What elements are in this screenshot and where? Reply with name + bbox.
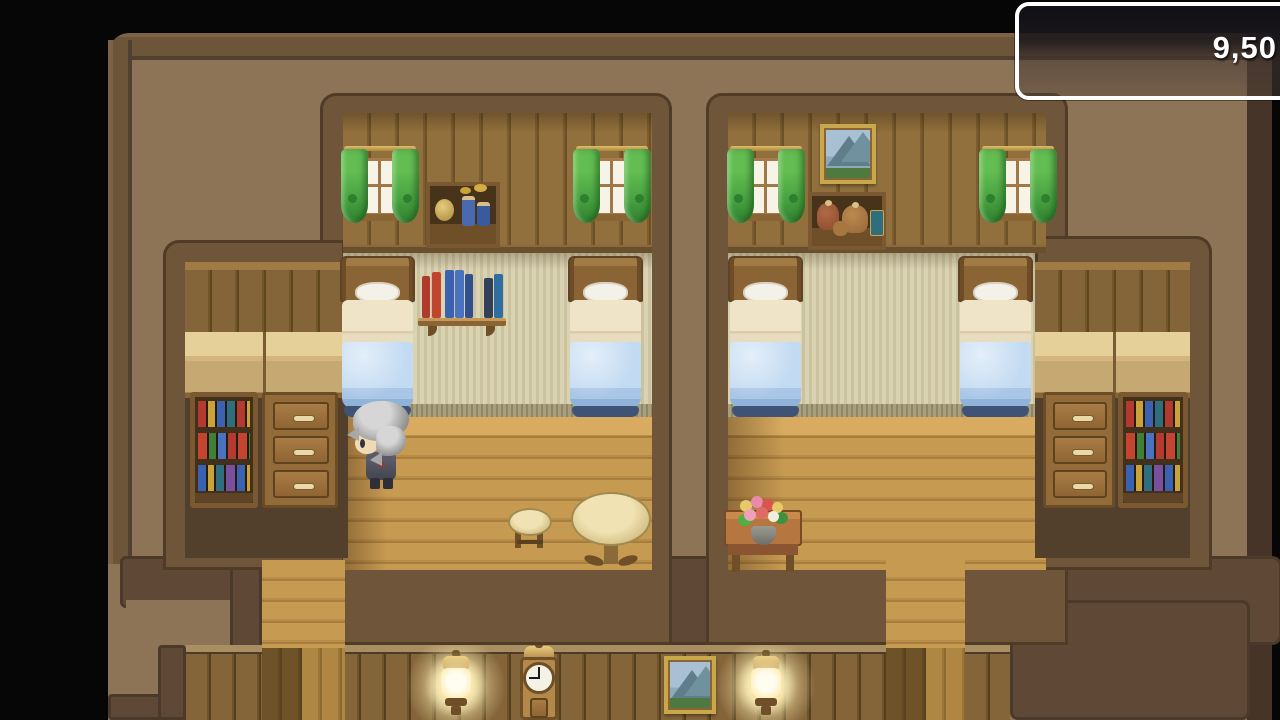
mountain-shape2 [841, 132, 870, 162]
book [445, 270, 454, 318]
shelf-plank [418, 318, 506, 326]
wall-lamp [742, 650, 790, 720]
corridor-shadow [262, 648, 302, 720]
book-row [198, 465, 250, 491]
curtain-tieback [734, 194, 743, 203]
curtain-tieback [1041, 194, 1050, 203]
book [455, 270, 464, 318]
character-leg [370, 478, 380, 489]
wall-lamp [432, 650, 480, 720]
shelf-front [430, 224, 496, 244]
grandfather-clock [514, 646, 564, 720]
jar-shelf [426, 182, 500, 248]
gold-lid [460, 187, 471, 194]
drawer [273, 402, 329, 430]
curtain-right [392, 149, 419, 223]
bookshelf [1118, 392, 1188, 508]
book-row [198, 401, 250, 427]
bed-sheet [570, 300, 641, 344]
character-hair-back [376, 426, 406, 456]
flower-white [768, 511, 779, 522]
book-row [1126, 401, 1180, 427]
bed-edge [962, 406, 1029, 417]
round-table [570, 490, 652, 574]
book [465, 274, 473, 318]
sack-small [833, 221, 848, 236]
left-wing-counter [185, 332, 348, 398]
curtain-tieback [580, 194, 589, 203]
curtain-right [778, 149, 805, 223]
stool-top [508, 508, 552, 536]
bed [340, 256, 415, 417]
bookshelf [190, 392, 258, 508]
right-room-wall-rail [728, 245, 1046, 253]
flower-pink [744, 509, 756, 521]
sack-shelf [808, 192, 886, 250]
drawer [1053, 436, 1107, 464]
bed-blanket [730, 342, 801, 408]
picture-scene [670, 662, 710, 708]
dresser [1043, 392, 1115, 508]
window-cross [610, 161, 613, 213]
table-leg [732, 554, 740, 572]
corridor-floor [262, 560, 345, 648]
window-with-curtains [982, 146, 1054, 234]
book-row [1126, 465, 1180, 491]
lamp-base [445, 698, 467, 706]
game-viewport[interactable]: 9,50 [0, 0, 1280, 720]
corridor-shadow [886, 648, 926, 720]
hall-wall-right [965, 645, 1010, 720]
bed-blanket [570, 342, 641, 408]
book-row [1126, 433, 1180, 459]
bed [958, 256, 1033, 417]
bookshelf-base [1123, 493, 1183, 503]
picture-scene [826, 130, 870, 178]
book [432, 272, 441, 318]
curtain-tieback [635, 194, 644, 203]
counter-seam [1113, 332, 1116, 398]
curtain-tieback [986, 194, 995, 203]
drawer-handle [1072, 449, 1094, 456]
gold-lid [474, 184, 487, 192]
window-cross [378, 161, 381, 213]
sack-tie [852, 202, 859, 208]
bed-edge [572, 406, 639, 417]
table-apron [728, 544, 798, 555]
curtain-left [979, 149, 1006, 223]
drawer-handle [1072, 415, 1094, 422]
book [484, 278, 493, 318]
left-wing-paneling [185, 262, 348, 332]
drawer [1053, 470, 1107, 498]
lamp-glass [751, 668, 781, 699]
table-foot [617, 553, 639, 568]
wall-book-shelf [418, 264, 506, 328]
book [494, 274, 503, 318]
drawer-handle [293, 449, 315, 456]
curtain-tieback [403, 194, 412, 203]
lamp-stem [761, 706, 771, 715]
drawer-handle [293, 483, 315, 490]
bed-edge [732, 406, 799, 417]
table-foot [583, 553, 605, 568]
blue-jar [477, 202, 490, 226]
bed-sheet [730, 300, 801, 344]
book-row [198, 433, 250, 459]
bed-blanket [342, 342, 413, 408]
player-character[interactable] [350, 400, 412, 492]
curtain-left [573, 149, 600, 223]
clock-door [530, 698, 548, 718]
stool [506, 504, 554, 556]
character-eye [360, 439, 365, 448]
flower-red [756, 507, 768, 519]
curtain-right [624, 149, 651, 223]
window-cross [1016, 161, 1019, 213]
bed [568, 256, 643, 417]
window-with-curtains [730, 146, 802, 234]
teal-book [870, 210, 884, 236]
curtain-right [1030, 149, 1057, 223]
hall-left-jamb [158, 645, 186, 720]
picture-grass [826, 168, 870, 178]
sack-tie [825, 200, 832, 206]
right-wing-paneling [1035, 262, 1190, 332]
table-top [571, 492, 651, 546]
corridor-left [262, 560, 345, 720]
flower-table [724, 496, 802, 574]
drawer-handle [1072, 483, 1094, 490]
drawer [273, 470, 329, 498]
table-leg [786, 554, 794, 572]
bed-blanket [960, 342, 1031, 408]
gold-amount: 9,50 [1019, 30, 1277, 66]
clock-hand-hour [529, 677, 539, 679]
counter-seam [263, 332, 266, 398]
curtain-tieback [348, 194, 357, 203]
bed [728, 256, 803, 417]
mountain-shape2 [684, 666, 710, 696]
character-leg [383, 478, 393, 489]
blue-jar [462, 196, 475, 226]
bed-sheet [960, 300, 1031, 344]
dresser [262, 392, 338, 508]
drawer [1053, 402, 1107, 430]
corridor-floor [886, 560, 965, 648]
drawer [273, 436, 329, 464]
lamp-stem [451, 706, 461, 715]
lamp-base [755, 698, 777, 706]
picture-grass [670, 698, 710, 708]
corridor-right [886, 560, 965, 720]
lamp-glass [441, 668, 471, 699]
curtain-left [727, 149, 754, 223]
stool-brace [517, 540, 543, 544]
curtain-left [341, 149, 368, 223]
curtain-tieback [789, 194, 798, 203]
mountain-picture-hall [664, 656, 716, 714]
mountain-picture [820, 124, 876, 184]
building-left-border [108, 40, 132, 564]
bed-sheet [342, 300, 413, 344]
gold-pot [435, 199, 454, 221]
drawer-handle [293, 415, 315, 422]
window-with-curtains [344, 146, 416, 234]
gold-window: 9,50 [1015, 2, 1280, 100]
book [422, 276, 430, 318]
window-with-curtains [576, 146, 648, 234]
bookshelf-base [195, 493, 253, 503]
window-cross [764, 161, 767, 213]
